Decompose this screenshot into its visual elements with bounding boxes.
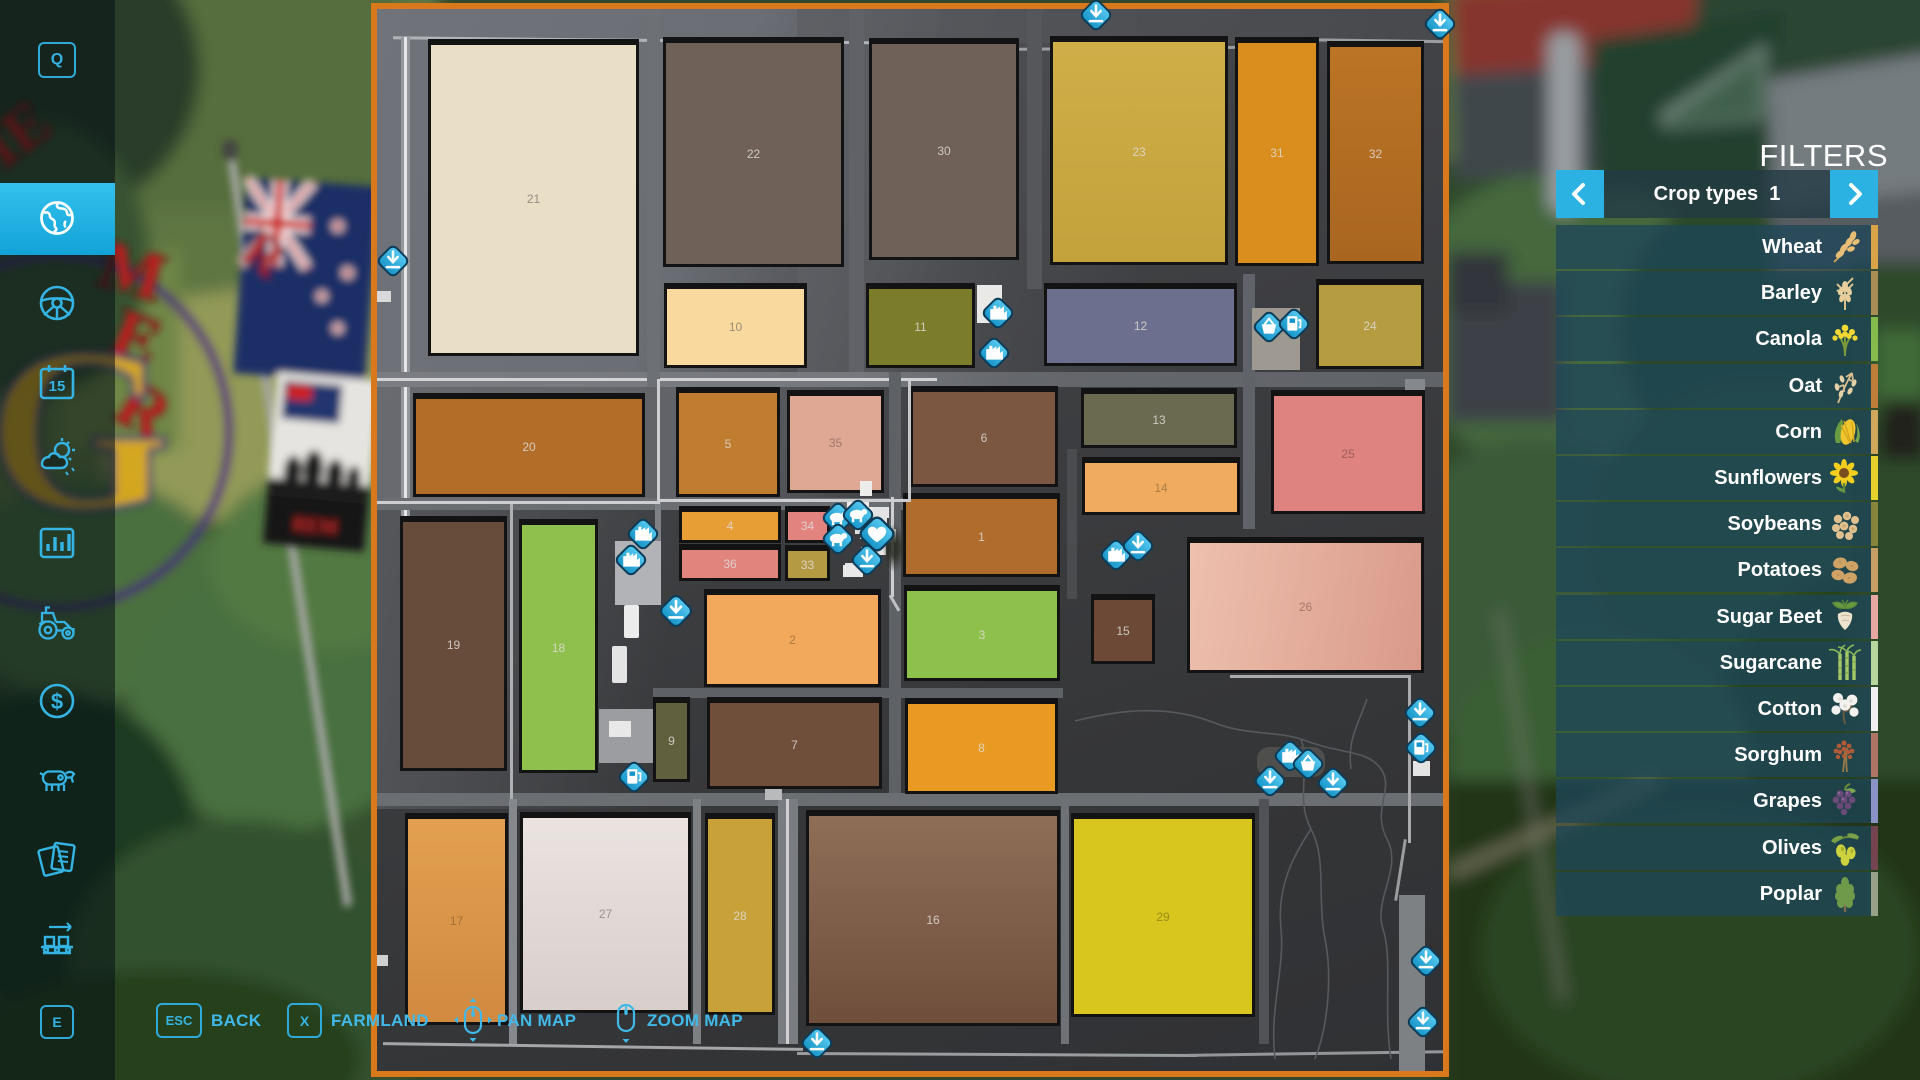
- svg-text:REM: REM: [292, 514, 338, 539]
- svg-text:$: $: [51, 689, 63, 714]
- svg-text:15: 15: [49, 378, 66, 395]
